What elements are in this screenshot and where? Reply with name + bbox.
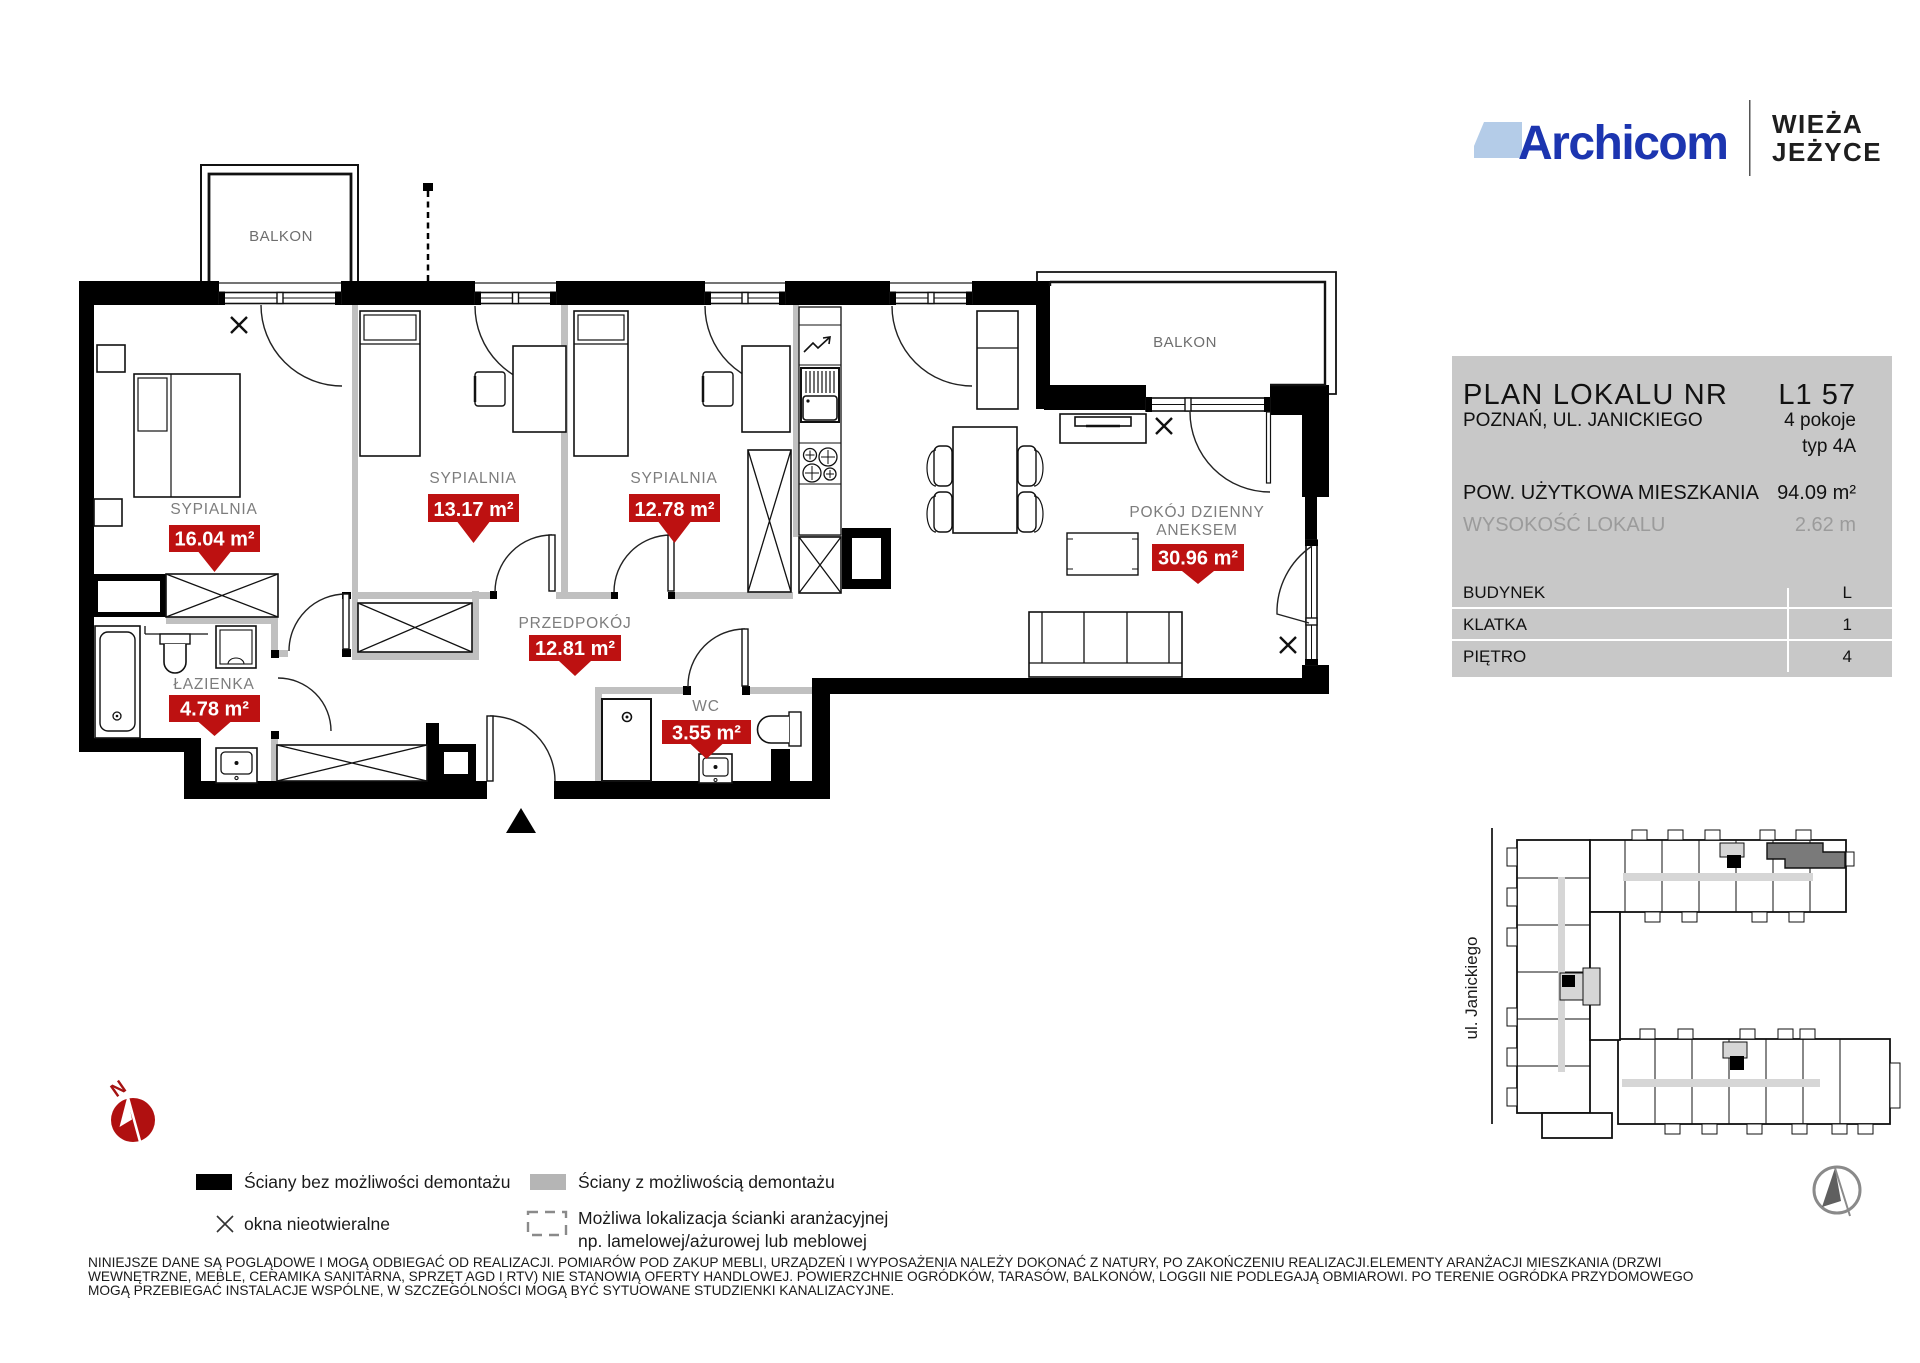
svg-text:POZNAŃ, UL. JANICKIEGO: POZNAŃ, UL. JANICKIEGO [1463, 410, 1703, 431]
svg-text:ŁAZIENKA: ŁAZIENKA [173, 676, 254, 693]
svg-text:4.78 m²: 4.78 m² [180, 699, 249, 721]
svg-text:MOGĄ PRZEBIEGAĆ INSTALACJE WSP: MOGĄ PRZEBIEGAĆ INSTALACJE WSPÓLNE, W SZ… [88, 1283, 894, 1298]
svg-text:SYPIALNIA: SYPIALNIA [630, 470, 717, 487]
svg-text:BALKON: BALKON [249, 228, 313, 245]
svg-text:okna nieotwieralne: okna nieotwieralne [244, 1214, 390, 1234]
svg-text:WC: WC [692, 698, 719, 715]
svg-text:SYPIALNIA: SYPIALNIA [170, 501, 257, 518]
svg-text:Ściany bez możliwości demontaż: Ściany bez możliwości demontażu [244, 1171, 511, 1192]
svg-text:np. lamelowej/ażurowej lub meb: np. lamelowej/ażurowej lub meblowej [578, 1231, 867, 1251]
svg-text:POKÓJ DZIENNY: POKÓJ DZIENNY [1129, 504, 1264, 521]
svg-text:Ściany z możliwością demontażu: Ściany z możliwością demontażu [578, 1171, 835, 1192]
svg-text:BALKON: BALKON [1153, 334, 1217, 351]
svg-text:ANEKSEM: ANEKSEM [1156, 522, 1237, 539]
svg-text:PLAN LOKALU NR: PLAN LOKALU NR [1463, 379, 1728, 411]
svg-text:13.17 m²: 13.17 m² [433, 499, 513, 521]
svg-text:POW. UŻYTKOWA MIESZKANIA: POW. UŻYTKOWA MIESZKANIA [1463, 481, 1760, 504]
svg-text:WYSOKOŚĆ LOKALU: WYSOKOŚĆ LOKALU [1463, 512, 1665, 536]
svg-text:BUDYNEK: BUDYNEK [1463, 583, 1546, 602]
svg-text:L1 57: L1 57 [1778, 379, 1856, 411]
svg-text:4: 4 [1843, 647, 1852, 666]
svg-text:Możliwa lokalizacja ścianki ar: Możliwa lokalizacja ścianki aranżacyjnej [578, 1208, 888, 1228]
svg-text:SYPIALNIA: SYPIALNIA [429, 470, 516, 487]
svg-text:1: 1 [1843, 615, 1852, 634]
svg-text:94.09 m²: 94.09 m² [1777, 482, 1856, 504]
svg-text:16.04 m²: 16.04 m² [174, 529, 254, 551]
svg-text:Archicom: Archicom [1518, 117, 1727, 170]
svg-text:12.78 m²: 12.78 m² [634, 499, 714, 521]
svg-text:JEŻYCE: JEŻYCE [1772, 137, 1882, 167]
svg-text:ul. Janickiego: ul. Janickiego [1462, 936, 1481, 1039]
svg-text:L: L [1843, 583, 1852, 602]
svg-text:2.62 m: 2.62 m [1795, 514, 1856, 536]
svg-text:3.55 m²: 3.55 m² [672, 723, 741, 745]
svg-text:WEWNĘTRZNE, MEBLE, CERAMIKA SA: WEWNĘTRZNE, MEBLE, CERAMIKA SANITARNA, S… [88, 1269, 1693, 1284]
svg-text:NINIEJSZE DANE SĄ POGLĄDOWE I: NINIEJSZE DANE SĄ POGLĄDOWE I MOGĄ ODBIE… [88, 1255, 1662, 1270]
svg-text:30.96 m²: 30.96 m² [1158, 548, 1238, 570]
svg-text:typ 4A: typ 4A [1802, 436, 1856, 457]
svg-text:WIEŻA: WIEŻA [1772, 109, 1863, 139]
svg-text:PRZEDPOKÓJ: PRZEDPOKÓJ [518, 615, 631, 632]
svg-text:PIĘTRO: PIĘTRO [1463, 647, 1526, 666]
svg-text:4 pokoje: 4 pokoje [1784, 410, 1856, 431]
svg-text:KLATKA: KLATKA [1463, 615, 1528, 634]
svg-text:12.81 m²: 12.81 m² [535, 638, 615, 660]
